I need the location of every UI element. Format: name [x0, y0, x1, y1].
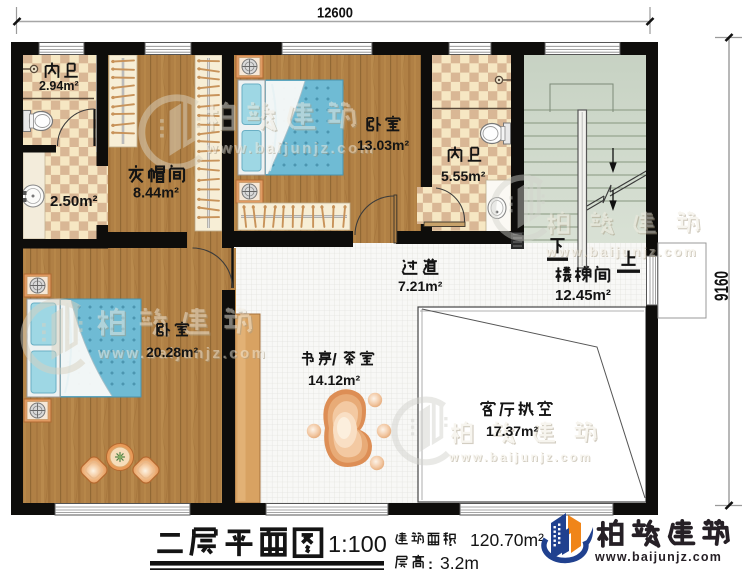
svg-text:13.03m²: 13.03m²	[357, 137, 409, 153]
svg-text:1:100: 1:100	[328, 531, 387, 557]
svg-text:/: /	[332, 350, 337, 369]
svg-text:12600: 12600	[317, 5, 353, 22]
svg-text:5.55m²: 5.55m²	[441, 168, 486, 184]
svg-text:8.44m²: 8.44m²	[133, 186, 179, 202]
svg-text:2.50m²: 2.50m²	[50, 193, 98, 210]
svg-text:7.21m²: 7.21m²	[398, 278, 443, 294]
svg-text:2.94m²: 2.94m²	[39, 79, 79, 93]
svg-text::: :	[448, 533, 453, 550]
svg-text:3.2m: 3.2m	[440, 553, 479, 573]
svg-text:12.45m²: 12.45m²	[555, 287, 611, 304]
svg-text:20.28m²: 20.28m²	[146, 344, 198, 360]
svg-text:www.baijunjz.com: www.baijunjz.com	[448, 450, 593, 464]
svg-text:9160: 9160	[712, 271, 733, 301]
svg-text:www.baijunjz.com: www.baijunjz.com	[205, 140, 375, 157]
svg-text:17.37m²: 17.37m²	[486, 423, 538, 439]
svg-text::: :	[428, 556, 433, 573]
svg-text:14.12m²: 14.12m²	[308, 372, 360, 388]
svg-text:www.baijunjz.com: www.baijunjz.com	[545, 244, 698, 259]
svg-text:120.70m²: 120.70m²	[470, 530, 544, 550]
svg-text:www.baijunjz.com: www.baijunjz.com	[594, 550, 722, 564]
